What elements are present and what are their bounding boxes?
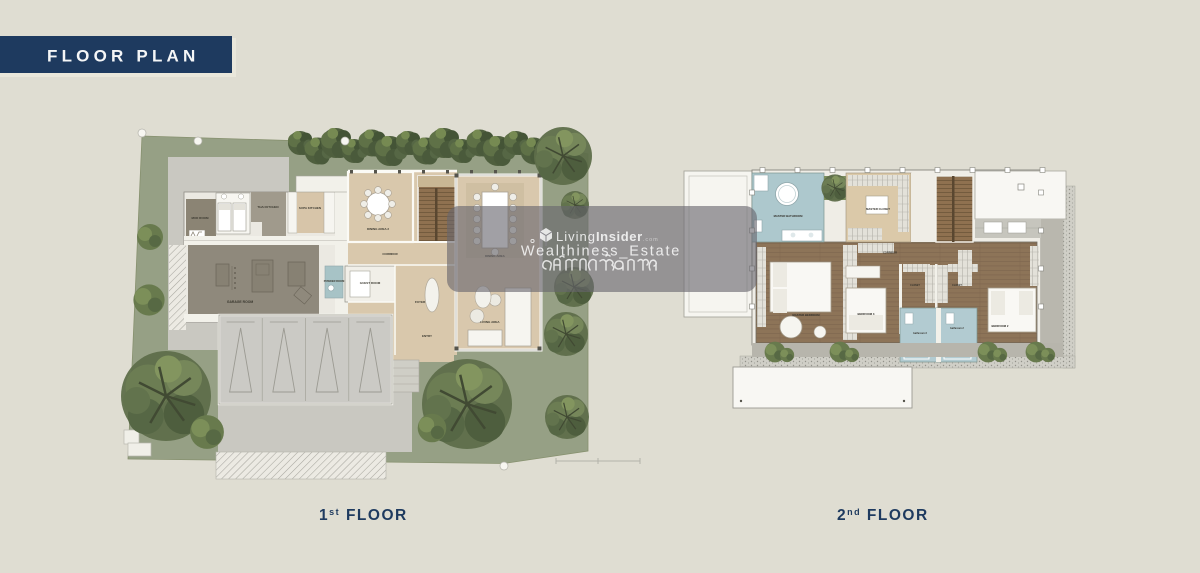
svg-text:GUEST ROOM: GUEST ROOM (360, 281, 381, 285)
svg-text:LIVING AREA: LIVING AREA (480, 320, 500, 324)
svg-text:CORRIDOR: CORRIDOR (883, 251, 897, 255)
svg-text:CLOSET: CLOSET (952, 284, 962, 287)
svg-text:FLOOR PLAN: FLOOR PLAN (47, 47, 200, 66)
svg-text:Wealthiness_Estate: Wealthiness_Estate (521, 244, 681, 260)
svg-text:FOYER: FOYER (415, 300, 426, 304)
svg-text:MASTER BEDROOM: MASTER BEDROOM (792, 313, 820, 317)
svg-text:GARAGE ROOM: GARAGE ROOM (227, 300, 254, 304)
svg-text:MUD ROOM: MUD ROOM (192, 216, 209, 220)
svg-text:POWDER ROOM: POWDER ROOM (324, 279, 344, 283)
svg-text:BEDROOM 2: BEDROOM 2 (992, 324, 1009, 328)
svg-text:BEDROOM 3: BEDROOM 3 (858, 312, 875, 316)
svg-text:SUPA KITCHEN: SUPA KITCHEN (299, 206, 321, 210)
svg-text:bathroom 3: bathroom 3 (913, 332, 927, 335)
svg-text:ENTRY: ENTRY (422, 334, 432, 338)
svg-text:MASTER BATHROOM: MASTER BATHROOM (774, 214, 804, 218)
svg-text:MASTER CLOSET: MASTER CLOSET (866, 207, 890, 211)
svg-text:bathroom 2: bathroom 2 (950, 327, 964, 330)
svg-text:CORRIDOR: CORRIDOR (382, 252, 397, 256)
svg-text:DINING AREA 2: DINING AREA 2 (367, 227, 389, 231)
svg-text:THAI KITCHEN: THAI KITCHEN (257, 205, 278, 209)
svg-text:CLOSET: CLOSET (910, 284, 920, 287)
